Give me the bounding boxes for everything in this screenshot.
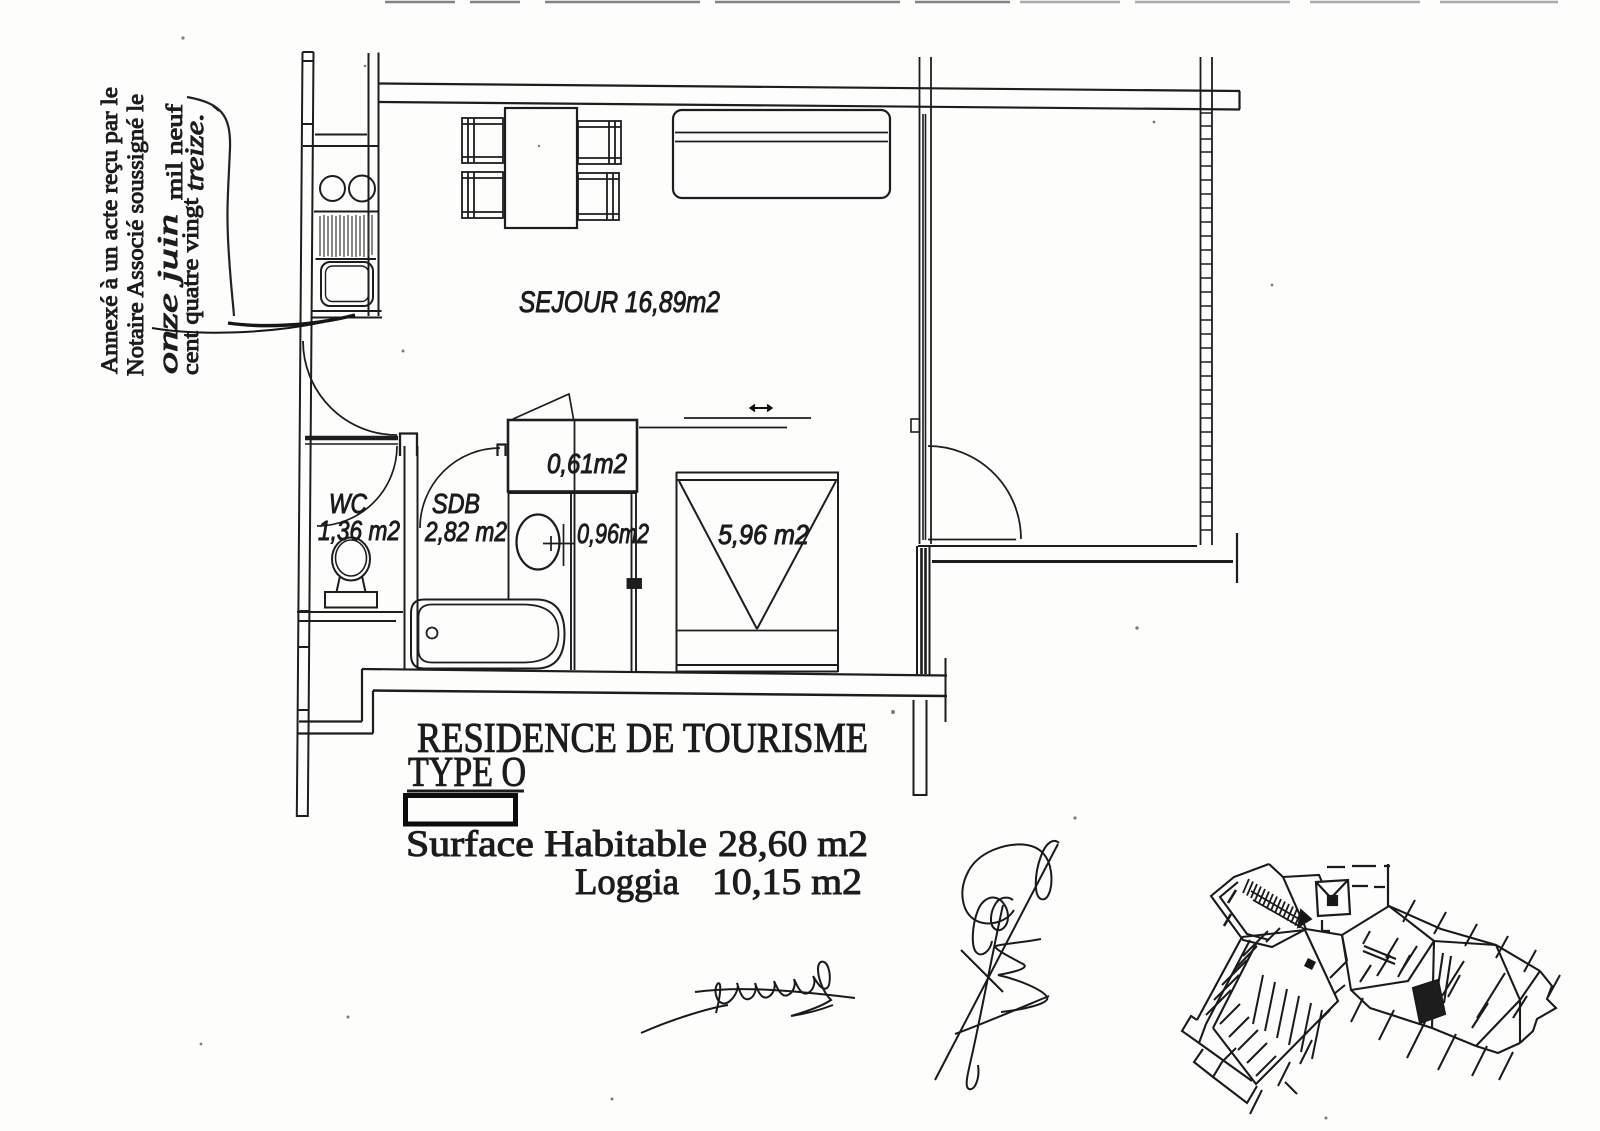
svg-text:cent quatre vingt: cent quatre vingt [178,197,203,375]
svg-text:0,61m2: 0,61m2 [547,448,627,479]
svg-text:Notaire Associé soussigné le: Notaire Associé soussigné le [123,94,148,376]
svg-text:SEJOUR 16,89m2: SEJOUR 16,89m2 [519,286,720,319]
svg-text:1,36 m2: 1,36 m2 [318,515,400,546]
svg-text:TYPE O: TYPE O [408,750,526,796]
svg-text:Annexé à un acte reçu par le: Annexé à un acte reçu par le [97,87,122,374]
svg-text:SDB: SDB [432,488,480,519]
svg-text:treize.: treize. [180,113,209,191]
svg-text:Loggia: Loggia [575,862,679,903]
svg-text:Surface Habitable: Surface Habitable [406,824,707,865]
svg-text:28,60 m2: 28,60 m2 [718,824,868,865]
svg-text:10,15 m2: 10,15 m2 [712,862,862,903]
svg-text:0,96m2: 0,96m2 [577,518,649,549]
svg-text:2,82 m2: 2,82 m2 [424,516,507,547]
svg-text:5,96 m2: 5,96 m2 [718,519,809,550]
